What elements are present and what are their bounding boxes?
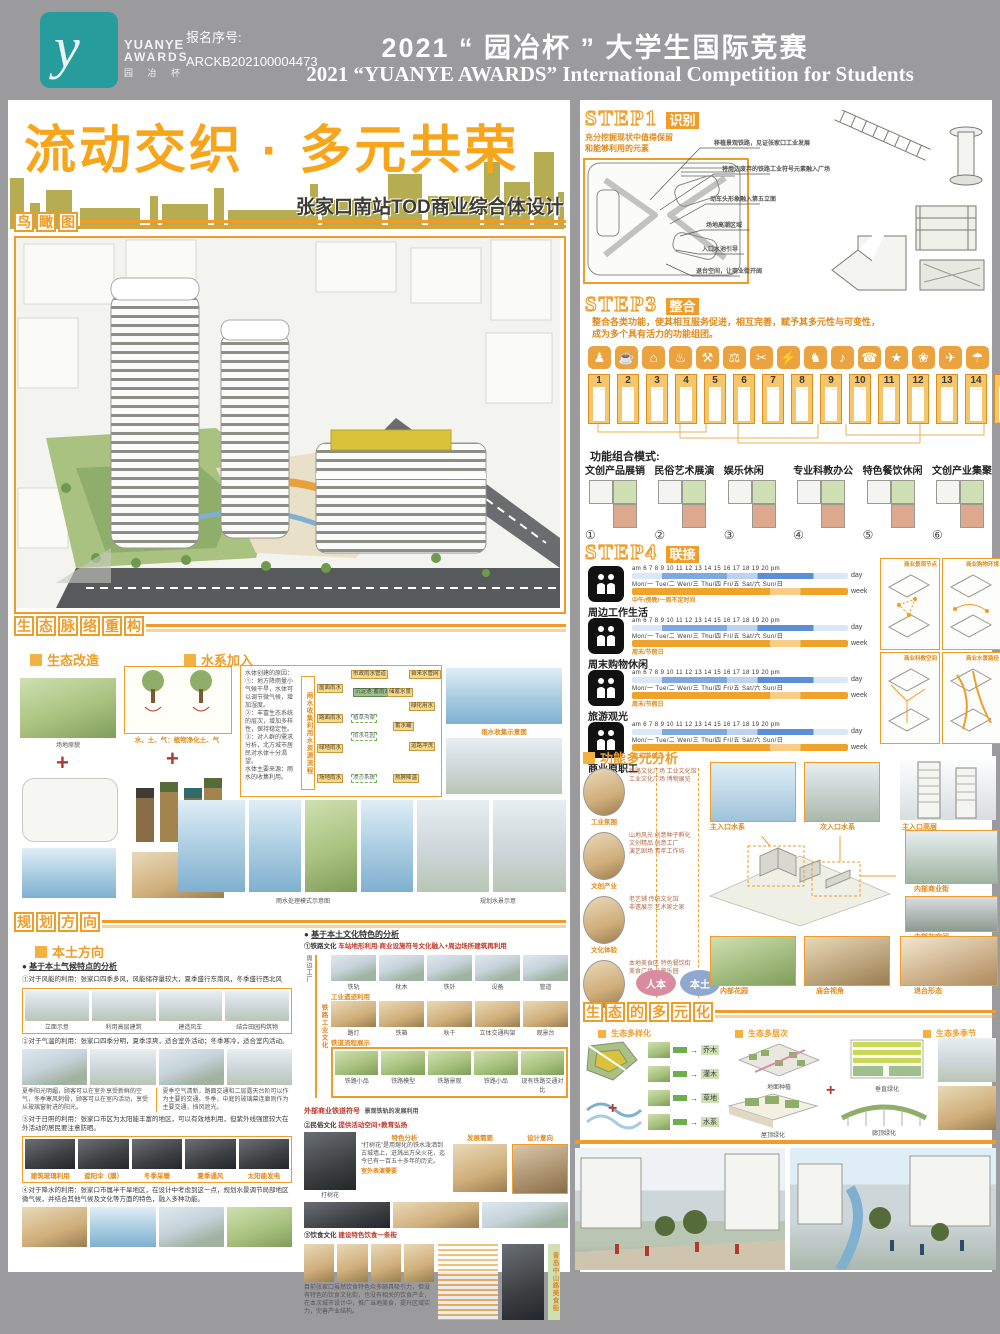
- folk-culture-line: ②民俗文化 提供活动空间+教育弘扬: [304, 1122, 568, 1131]
- artifact-caption: 设备: [475, 982, 520, 991]
- eco-plan-sketch: [583, 1040, 643, 1136]
- panel-label: 商业水景路径: [966, 654, 999, 662]
- main-entrance-water-label: 主入口水系: [710, 822, 745, 832]
- cube: [658, 480, 682, 504]
- flow-box: 绿地雨水: [317, 744, 343, 753]
- color-chip: [673, 1071, 687, 1077]
- week-scale: Mon/一 Tue/二 Wen/三 Thu/四 Fri/五 Sat/六 Sun/…: [632, 735, 867, 744]
- wind-diagram-caption: 结合田园构筑物: [225, 1022, 289, 1031]
- aerial-section-header: 鸟瞰图: [14, 212, 566, 232]
- inner-garden-photo: [710, 936, 796, 986]
- wind-strip: 立面示意 利用高层建筑 建造风车 结合田园构筑物: [22, 988, 292, 1034]
- artifact-image: [475, 955, 520, 981]
- day-word: day: [851, 676, 862, 683]
- folk-col-1: 特色分析: [361, 1132, 448, 1142]
- building-water-diagram: [446, 738, 562, 794]
- vegetation-tag: 乔木: [701, 1045, 719, 1055]
- aerial-header-text: 鸟瞰图: [14, 212, 80, 232]
- function-card: 7⋮: [762, 374, 784, 424]
- theme-keywords: 老艺铺 传统文化馆 非遗展示 艺术家之家: [629, 896, 685, 954]
- logo-line2: AWARDS: [124, 51, 189, 64]
- eco-diversity-header-text: 生态的多元化: [583, 1002, 715, 1022]
- function-icon: ♟: [588, 346, 611, 369]
- wind-strip-cell: 立面示意: [25, 991, 89, 1031]
- arrow-glyph: →: [690, 1094, 698, 1103]
- week-scale: Mon/一 Tue/二 Wen/三 Thu/四 Fri/五 Sat/六 Sun/…: [632, 683, 867, 692]
- dashuhua-caption: 打树花: [304, 1190, 356, 1199]
- terrace-form-label: 退台形态: [914, 986, 942, 996]
- sun-diagram-caption: 遮阳伞（膜）: [78, 1170, 128, 1180]
- function-card: 10⋮: [849, 374, 871, 424]
- climate-analysis-column: ● 基于本土气候特点的分析 ①对于风能的利用：张家口四季多风，风能储存量较大，夏…: [22, 962, 292, 1247]
- artifact-cell: 路灯: [331, 1001, 376, 1037]
- plaza-photo: [90, 1207, 155, 1247]
- folk-block: 打树花 特色分析 “打树花”是用熔化的铁水泼洒到古城墙上，迸溅出万朵火花，迄今已…: [304, 1132, 568, 1199]
- sun-strip-cell: 夏季通风: [185, 1139, 235, 1180]
- rail-design-image: [428, 1051, 471, 1075]
- mode-label: 特色餐饮休闲: [863, 462, 923, 477]
- folk-note: 室外表演需要: [361, 1166, 448, 1175]
- water-intro-diagram: [22, 848, 116, 898]
- function-icon-tiles: ♟☕⌂♨⚒⚖✂⚡♞♪☎★❀✈☂: [588, 346, 996, 369]
- site-axon-diagram: [22, 778, 118, 842]
- day-word: day: [851, 624, 862, 631]
- cube-tinted: [682, 480, 706, 504]
- function-number: 3: [654, 375, 660, 386]
- eco-transform-subheader: 生态改造: [30, 650, 99, 669]
- mode-label: 娱乐休闲: [724, 462, 764, 477]
- mode-number: ④: [793, 528, 804, 542]
- artifact-image: [523, 955, 568, 981]
- callout-4: 场地高潮区域: [706, 222, 742, 230]
- function-number-cards: 1⋮2⋮3⋮4⋮5⋮6⋮7⋮8⋮9⋮10⋮11⋮12⋮13⋮14⋮15⋮: [588, 374, 996, 424]
- winter-note: 夏季空气清新，路面交通和二层露天台阶可以作为主要的交通。冬季，中庭的玻璃幕连廊则…: [163, 1088, 293, 1112]
- step1-site-plan: [583, 158, 749, 284]
- vegetation-tag: 水系: [701, 1117, 719, 1127]
- logo-y-glyph: y: [54, 14, 80, 81]
- climate-item-3: ③对于日照的利用：张家口市区为太阳能丰富的地区，可以有效地利用，但紫外线强度较大…: [22, 1116, 292, 1133]
- cube-tinted: [613, 504, 637, 528]
- photo-cell: [22, 1049, 87, 1085]
- artifact-cell: 铁钎: [427, 955, 472, 991]
- poster-stage: y YUANYE AWARDS 园 冶 杯 报名序号: ARCKB2021000…: [0, 0, 1000, 1334]
- artifact-cell: 设备: [475, 955, 520, 991]
- rail-culture-label: ①铁路文化: [304, 943, 337, 950]
- inner-street-label: 内部商业街: [914, 884, 949, 894]
- season-sketch-spring: [938, 1038, 996, 1082]
- rail-design-caption: 铁路小品: [474, 1076, 517, 1085]
- street-photo: [227, 1049, 292, 1085]
- mode-cluster: 特色餐饮休闲 ⑤: [863, 462, 927, 542]
- branch-2: 铁道流程展示: [331, 1037, 568, 1047]
- rail-design-caption: 铁路小品: [335, 1076, 378, 1085]
- theme-photo: [583, 832, 625, 880]
- sun-diagram-image: [185, 1139, 235, 1169]
- day-word: day: [851, 728, 862, 735]
- circle-col: 文化体验: [583, 896, 625, 954]
- function-card-label: ⋮: [854, 387, 866, 421]
- rail-design-image: [335, 1051, 378, 1075]
- food-photo: [371, 1244, 401, 1282]
- mode-cluster: 文创产品展销 ①: [585, 462, 649, 542]
- step3-header: STEP3 整合: [585, 292, 699, 317]
- theme-photo: [583, 768, 625, 816]
- bottom-divider-line: [575, 1140, 996, 1144]
- food-culture-label: ③饮食文化: [304, 1232, 337, 1239]
- theme-keywords: 铁路文化广场 工业文化馆 工业文化广场 博物展览: [629, 768, 697, 826]
- eco-diversity-header-line: [715, 1010, 996, 1013]
- secondary-entrance-water-photo: [804, 762, 880, 822]
- circle-row: 工业氛围 铁路文化广场 工业文化馆 工业文化广场 博物展览: [583, 768, 703, 826]
- plan-section-header: 规划方向: [14, 912, 566, 932]
- wind-diagram-image: [25, 991, 89, 1021]
- function-icon: ♨: [669, 346, 692, 369]
- week-bar: [632, 588, 848, 595]
- day-bar: [632, 729, 848, 735]
- function-icon: ⚖: [723, 346, 746, 369]
- schedule-note: 中午/傍晚/一周不定时间: [632, 595, 867, 604]
- artifact-caption: 管道: [523, 982, 568, 991]
- wind-strip-cell: 建造风车: [159, 991, 223, 1031]
- callout-2: 将周边废弃的铁路工业符号元素融入广场: [722, 166, 830, 174]
- analysis-panel-1: 商业景观节点: [880, 558, 940, 650]
- flow-box: 储蓄水景: [387, 688, 413, 697]
- function-card: 12⋮: [907, 374, 929, 424]
- week-scale: Mon/一 Tue/二 Wen/三 Thu/四 Fri/五 Sat/六 Sun/…: [632, 631, 867, 640]
- analysis-panel-3: 商业科教空间: [880, 652, 940, 744]
- rain-collect-caption: 雨水收集示意图: [446, 726, 562, 736]
- vegetation-photo: [648, 1114, 670, 1130]
- function-card-label: ⋮: [912, 387, 924, 421]
- food-photo: [337, 1244, 367, 1282]
- function-card-label: ⋮: [825, 387, 837, 421]
- cube-tinted: [891, 504, 915, 528]
- flow-box: 屋面雨水: [317, 684, 343, 693]
- function-card-label: ⋮: [883, 387, 895, 421]
- wind-diagram-caption: 立面示意: [25, 1022, 89, 1031]
- rail-design-cell: 现有铁路交通对比: [521, 1051, 564, 1094]
- food-photo-row: [304, 1244, 434, 1282]
- climate-title: ● 基于本土气候特点的分析: [22, 962, 292, 972]
- rail-design-cell: 铁路景观: [428, 1051, 471, 1094]
- panel-label: 商业购物环境: [966, 560, 999, 568]
- rail-design-caption: 铁路模型: [381, 1076, 424, 1085]
- function-card: 4⋮: [675, 374, 697, 424]
- cube-tinted: [960, 504, 984, 528]
- cube: [728, 480, 752, 504]
- aerial-view-rendering: [16, 238, 560, 608]
- cube: [867, 480, 891, 504]
- street-photo: [90, 1049, 155, 1085]
- artifact-caption: 立体交通构架: [475, 1028, 520, 1037]
- cube-tinted: [960, 480, 984, 504]
- day-word: day: [851, 572, 862, 579]
- step4-header: STEP4 联接: [585, 540, 699, 565]
- week-bar: [632, 692, 848, 699]
- eco-tag-row: → 灌木: [648, 1062, 728, 1086]
- flow-box: 自来水管网: [409, 670, 441, 679]
- wind-diagram-image: [92, 991, 156, 1021]
- function-card-label: ⋮: [622, 387, 634, 421]
- function-number: 10: [854, 375, 865, 386]
- panel-label: 商业景观节点: [904, 560, 937, 568]
- function-card: 3⋮: [646, 374, 668, 424]
- rail-design-caption: 现有铁路交通对比: [521, 1076, 564, 1094]
- artifact-caption: 秋千: [427, 1028, 472, 1037]
- plus-sign: +: [56, 750, 69, 776]
- step1-intro: 充分挖掘现状中值得保留 和能够利用的元素: [585, 132, 673, 154]
- artifact-caption: 观景台: [523, 1028, 568, 1037]
- subheader-square-icon: [583, 752, 595, 764]
- water-flowchart: 屋面雨水 路面雨水 绿地雨水 场地雨水 市政雨水管道 沉淀池·蓄雨池 植草沟渠 …: [317, 670, 437, 792]
- canopy-greening-label: 廊顶绿化: [836, 1128, 932, 1137]
- artifact-image: [331, 955, 376, 981]
- rail-note-2: 景观铁轨的发展利用: [364, 1109, 418, 1115]
- roof-greening-diagram: [723, 1092, 823, 1130]
- multi-analysis-title: 功能多元分析: [600, 748, 678, 767]
- step1-header: STEP1 识别: [585, 106, 699, 131]
- cube: [797, 480, 821, 504]
- local-direction-subheader: 本土方向: [35, 942, 104, 961]
- function-number: 4: [683, 375, 689, 386]
- eco-sub-1-text: 生态多样化: [611, 1028, 651, 1039]
- folk-photo: [393, 1202, 479, 1228]
- step3-intro: 整合各类功能，使其相互服务促进，相互完善，赋予其多元性与可变性， 成为多个具有活…: [592, 316, 992, 340]
- need-diagram: [453, 1144, 507, 1192]
- folk-culture-desc: 提供活动空间+教育弘扬: [338, 1122, 407, 1129]
- cube: [589, 480, 613, 504]
- subheader-square-icon: [598, 1030, 606, 1038]
- flow-box: 蓄水罐: [393, 722, 414, 731]
- rail-design-cell: 铁路模型: [381, 1051, 424, 1094]
- competition-title-cn: 2021 “ 园冶杯 ” 大学生国际竞赛: [190, 26, 1000, 65]
- site-photo: [20, 678, 116, 738]
- intent-image: [512, 1144, 568, 1194]
- artifact-row-2: 路灯铁箱秋千立体交通构架观景台: [331, 1001, 568, 1037]
- eco-section-header: 生态脉络重构: [14, 616, 566, 636]
- function-number: 5: [712, 375, 718, 386]
- mode-number: ③: [724, 528, 735, 542]
- photo-cell: [22, 1207, 87, 1247]
- waterfront-scene: [361, 800, 413, 892]
- week-scale: Mon/一 Tue/二 Wen/三 Thu/四 Fri/五 Sat/六 Sun/…: [632, 579, 867, 588]
- artifact-cell: 管道: [523, 955, 568, 991]
- flow-box: 路面雨水: [317, 714, 343, 723]
- plaza-photo: [22, 1207, 87, 1247]
- function-card-label: ⋮: [651, 387, 663, 421]
- function-card-label: ⋮: [941, 387, 953, 421]
- schedule-row: 周边工作生活 am 6 7 8 9 10 11 12 13 14 15 16 1…: [588, 566, 878, 618]
- dashuhua-photo: [304, 1132, 356, 1190]
- aerial-header-line: [80, 220, 566, 223]
- cube-tinted: [821, 504, 845, 528]
- schedule-row-label: 周边工作生活: [588, 604, 648, 619]
- eco-tag-rows: → 乔木 → 灌木 → 草地: [648, 1038, 728, 1134]
- step3-badge: 整合: [666, 298, 698, 315]
- plaza-photo: [227, 1207, 292, 1247]
- temperature-photo-strip: [22, 1049, 292, 1085]
- rail-notes: 外部商业铁道符号 景观铁轨的发展利用: [304, 1100, 568, 1118]
- pole-human: 人本: [636, 970, 676, 996]
- rail-artifact-grids: 铁轨枕木铁钎设备管道 工业遗迹利用 路灯铁箱秋千立体交通构架观景台 铁道流程展示…: [331, 955, 568, 1098]
- artifact-image: [331, 1001, 376, 1027]
- food-photo: [304, 1244, 334, 1282]
- food-block: 目前张家口虽然饮食特色众多颇具吸引力，但没有特色的饮食文化街，也没有相关的饮食产…: [304, 1244, 568, 1320]
- theme-photo: [583, 896, 625, 944]
- grey-space-photo: [905, 896, 998, 932]
- vegetation-photo: [648, 1066, 670, 1082]
- week-word: week: [851, 692, 867, 699]
- function-card: 8⋮: [791, 374, 813, 424]
- arrow-glyph: →: [690, 1070, 698, 1079]
- rail-culture-line: ①铁路文化 车站地形利用·商业设施符号文化融入+周边场所建筑再利用: [304, 943, 568, 952]
- food-photo: [404, 1244, 434, 1282]
- plan-header-text: 规划方向: [14, 912, 102, 932]
- cube-tinted: [821, 480, 845, 504]
- fair-view-label: 庙会视角: [816, 986, 844, 996]
- food-paragraph: 目前张家口虽然饮食特色众多颇具吸引力，但没有特色的饮食文化街，也没有相关的饮食产…: [304, 1284, 434, 1316]
- function-card: 5⋮: [704, 374, 726, 424]
- season-sketch-autumn: [938, 1086, 996, 1130]
- climate-item-1: ①对于风能的利用：张家口四季多风，风能储存量较大，夏季盛行东南风，冬季盛行西北风: [22, 976, 292, 985]
- folk-col-3: 设计意向: [512, 1132, 568, 1142]
- aerial-view-frame: [14, 236, 566, 614]
- function-number: 6: [741, 375, 747, 386]
- function-number: 7: [770, 375, 776, 386]
- food-culture-desc: 建设特色饮食一条街: [338, 1232, 397, 1239]
- wind-strip-cell: 利用高层建筑: [92, 991, 156, 1031]
- analysis-panel-4: 商业水景路径: [942, 652, 1000, 744]
- poster-body: 流动交织 · 多元共荣 张家口南站TOD商业综合体设计 鸟瞰图: [8, 100, 992, 1272]
- column-divider: [570, 100, 580, 1272]
- street-photo: [159, 1049, 224, 1085]
- step3-title: STEP3: [585, 292, 658, 316]
- water-scene-strip: [178, 800, 566, 892]
- function-icon: ✈: [939, 346, 962, 369]
- mode-number: ⑤: [863, 528, 874, 542]
- climate-item-4: ④对于降水的利用：张家口市属半干旱地区，在设计中考虑到这一点，规划水景调节局部地…: [22, 1187, 292, 1204]
- color-chip: [673, 1047, 687, 1053]
- function-card: 1⋮: [588, 374, 610, 424]
- function-number: 9: [828, 375, 834, 386]
- arrow-glyph: →: [690, 1046, 698, 1055]
- sun-diagram-caption: 冬季采暖: [132, 1170, 182, 1180]
- ground-planting-diagram: [735, 1040, 823, 1080]
- artifact-caption: 铁箱: [379, 1028, 424, 1037]
- sun-strip: 建筑玻璃利用 遮阳伞（膜） 冬季采暖 夏季通风: [22, 1136, 292, 1183]
- function-card: 9⋮: [820, 374, 842, 424]
- artifact-row-1: 铁轨枕木铁钎设备管道: [331, 955, 568, 991]
- main-entrance-tower-photo: [900, 756, 996, 820]
- mode-cluster: 娱乐休闲 ③: [724, 462, 788, 542]
- flow-box: 渗沙系统: [351, 774, 377, 783]
- sun-strip-cell: 遮阳伞（膜）: [78, 1139, 128, 1180]
- street-render-left: [575, 1148, 785, 1270]
- eco-tag-row: → 乔木: [648, 1038, 728, 1062]
- main-entrance-water-photo: [710, 762, 796, 822]
- function-card-label: ⋮: [680, 387, 692, 421]
- function-card-label: ⋮: [970, 387, 982, 421]
- theme-keywords: 山地风光 创意种子孵化 文创精品 创意工厂 演艺剧场 青年工作坊: [629, 832, 691, 890]
- rail-design-cell: 铁路小品: [335, 1051, 378, 1094]
- yuanye-awards-logo: y: [40, 12, 118, 88]
- circle-col: 工业氛围: [583, 768, 625, 826]
- vegetation-tag: 草地: [701, 1093, 719, 1103]
- circle-row: 文创产业 山地风光 创意种子孵化 文创精品 创意工厂 演艺剧场 青年工作坊: [583, 832, 703, 890]
- mode-cluster: 民俗艺术展演 ②: [654, 462, 718, 542]
- plaza-photo: [159, 1207, 224, 1247]
- step1-title: STEP1: [585, 106, 658, 130]
- eco-tag-row: → 草地: [648, 1086, 728, 1110]
- photo-cell: [159, 1207, 224, 1247]
- folk-need-col: 发展需要: [453, 1132, 507, 1199]
- folk-photo-strip: [304, 1202, 568, 1228]
- canopy-greening-diagram: [836, 1096, 932, 1128]
- factory-vertical-label: 周边工厂: [304, 955, 312, 1098]
- mode-label: 专业科教办公: [793, 462, 853, 477]
- mode-label: 民俗艺术展演: [654, 462, 714, 477]
- day-bar: [632, 573, 848, 579]
- function-icon: ⚒: [696, 346, 719, 369]
- rail-industry-vertical-label: 铁路工业文化: [315, 955, 328, 1098]
- color-chip: [673, 1095, 687, 1101]
- subheader-square-icon: [30, 654, 42, 666]
- folk-photo: [482, 1202, 568, 1228]
- schedule-row: 周末购物休闲 am 6 7 8 9 10 11 12 13 14 15 16 1…: [588, 618, 878, 670]
- rail-note-1: 外部商业铁道符号: [304, 1108, 360, 1115]
- schedule-row: 旅游观光 am 6 7 8 9 10 11 12 13 14 15 16 17 …: [588, 670, 878, 722]
- function-card-label: ⋮: [593, 387, 605, 421]
- mode-cluster: 专业科教办公 ④: [793, 462, 857, 542]
- rain-photo-strip: [22, 1207, 292, 1247]
- subheader-square-icon: [35, 946, 47, 958]
- water-landscape-section: [493, 800, 566, 892]
- cube-tinted: [752, 504, 776, 528]
- step1-badge: 识别: [666, 112, 698, 129]
- vegetation-photo: [648, 1042, 670, 1058]
- function-card-label: ⋮: [767, 387, 779, 421]
- artifact-cell: 铁箱: [379, 1001, 424, 1037]
- function-card-label: ⋮: [796, 387, 808, 421]
- vertical-greening-diagram: [843, 1036, 931, 1082]
- function-mode-clusters: 文创产品展销 ① 民俗艺术展演 ② 娱乐休闲: [585, 462, 996, 542]
- step1-element-sketches: [820, 110, 990, 295]
- function-icon: ☂: [966, 346, 989, 369]
- rail-artifacts-block: 周边工厂 铁路工业文化 铁轨枕木铁钎设备管道 工业遗迹利用 路灯铁箱秋千立体交通…: [304, 955, 568, 1098]
- sun-diagram-image: [132, 1139, 182, 1169]
- eco-sub-1: 生态多样化: [598, 1028, 651, 1039]
- wind-diagram-image: [225, 991, 289, 1021]
- week-word: week: [851, 744, 867, 751]
- step4-badge: 联接: [666, 546, 698, 563]
- vegetation-photo: [648, 1090, 670, 1106]
- function-icon: ⌂: [642, 346, 665, 369]
- fair-view-photo: [804, 936, 890, 986]
- mode-number: ⑥: [932, 528, 943, 542]
- food-culture-line: ③饮食文化 建设特色饮食一条街: [304, 1232, 568, 1241]
- artifact-caption: 铁钎: [427, 982, 472, 991]
- artifact-cell: 秋千: [427, 1001, 472, 1037]
- folk-strip-cell: [393, 1202, 479, 1228]
- folk-culture-label: ②民俗文化: [304, 1122, 337, 1129]
- sun-diagram-caption: 夏季通风: [185, 1170, 235, 1180]
- inner-street-photo: [905, 830, 998, 884]
- callout-1: 移植景观铁路，见证张家口工业发展: [714, 140, 810, 148]
- water-strip-caption-left: 雨水处理模式示意图: [228, 896, 378, 905]
- function-number: 12: [912, 375, 923, 386]
- function-number: 1: [596, 375, 602, 386]
- artifact-caption: 路灯: [331, 1028, 376, 1037]
